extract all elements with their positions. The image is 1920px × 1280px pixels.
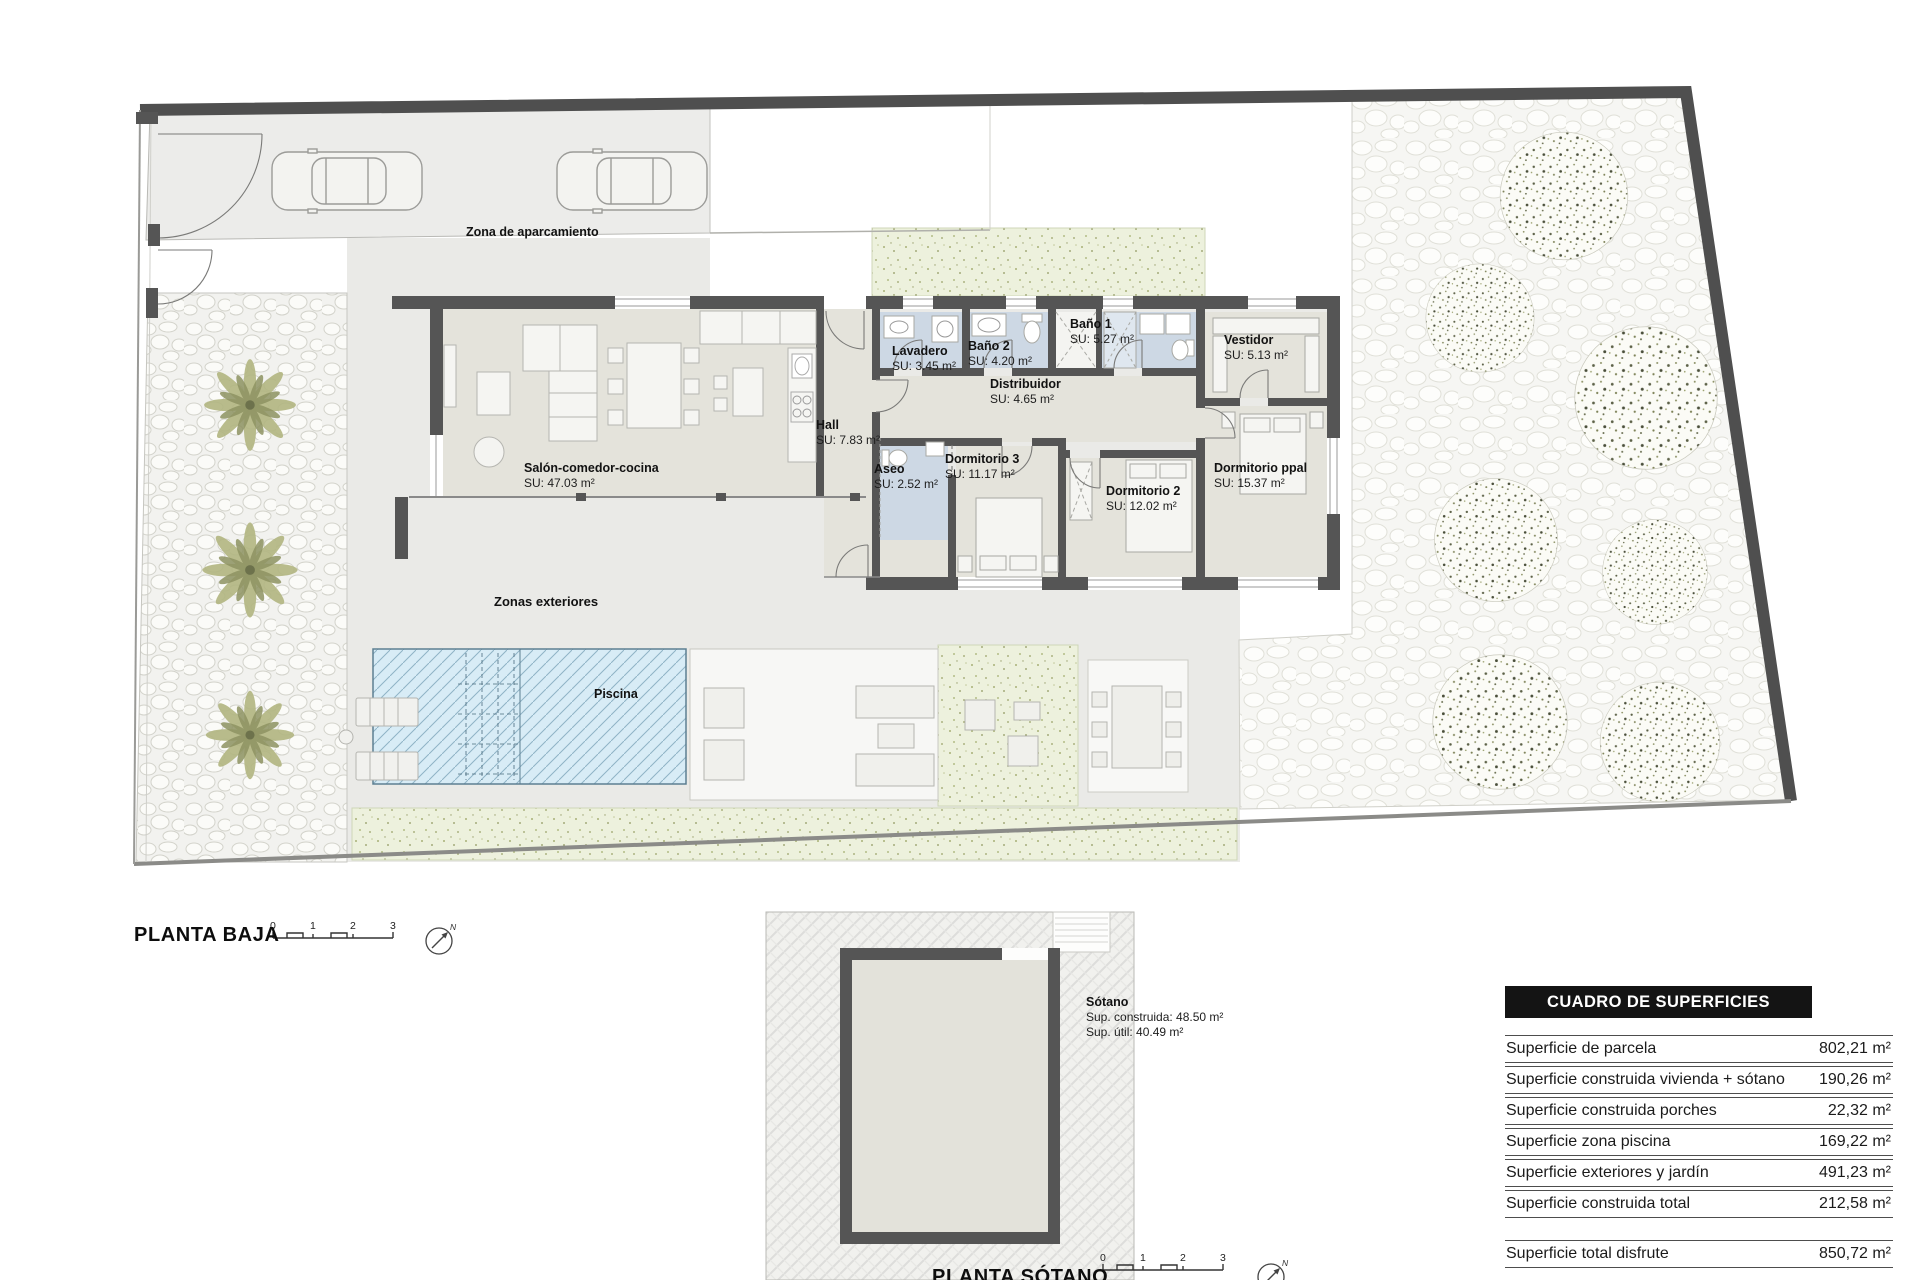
room-area: SU: 12.02 m² bbox=[1106, 499, 1180, 514]
row-value: 491,23 m² bbox=[1819, 1164, 1891, 1182]
row-label: Superficie construida total bbox=[1506, 1195, 1690, 1213]
row-label: Superficie de parcela bbox=[1506, 1040, 1656, 1058]
basement-built-area: Sup. construida: 48.50 m² bbox=[1086, 1010, 1223, 1025]
room-label-salon: Salón-comedor-cocina SU: 47.03 m² bbox=[524, 461, 659, 491]
surfaces-table-rows: Superficie de parcela 802,21 m² Superfic… bbox=[1505, 1035, 1893, 1268]
room-area: SU: 4.20 m² bbox=[968, 354, 1032, 369]
room-area: SU: 5.27 m² bbox=[1070, 332, 1134, 347]
room-name: Vestidor bbox=[1224, 333, 1288, 348]
table-row: Superficie construida porches 22,32 m² bbox=[1505, 1097, 1893, 1125]
room-label-aseo: Aseo SU: 2.52 m² bbox=[874, 462, 938, 492]
row-value: 850,72 m² bbox=[1819, 1245, 1891, 1263]
room-name: Dormitorio 2 bbox=[1106, 484, 1180, 499]
surfaces-table: CUADRO DE SUPERFICIES Superficie de parc… bbox=[1505, 986, 1893, 1271]
room-label-dorm2: Dormitorio 2 SU: 12.02 m² bbox=[1106, 484, 1180, 514]
floor-plan-page: 0 1 2 3 N bbox=[0, 0, 1920, 1280]
room-area: SU: 47.03 m² bbox=[524, 476, 659, 491]
table-row: Superficie de parcela 802,21 m² bbox=[1505, 1035, 1893, 1063]
row-value: 190,26 m² bbox=[1819, 1071, 1891, 1089]
room-area: SU: 5.13 m² bbox=[1224, 348, 1288, 363]
room-area: SU: 2.52 m² bbox=[874, 477, 938, 492]
row-label: Superficie total disfrute bbox=[1506, 1245, 1669, 1263]
room-label-bano2: Baño 2 SU: 4.20 m² bbox=[968, 339, 1032, 369]
exterior-zones-label: Zonas exteriores bbox=[494, 594, 598, 609]
room-label-dorm3: Dormitorio 3 SU: 11.17 m² bbox=[945, 452, 1019, 482]
room-name: Salón-comedor-cocina bbox=[524, 461, 659, 476]
row-value: 169,22 m² bbox=[1819, 1133, 1891, 1151]
room-label-lavadero: Lavadero SU: 3.45 m² bbox=[892, 344, 956, 374]
room-name: Baño 2 bbox=[968, 339, 1032, 354]
table-row: Superficie exteriores y jardín 491,23 m² bbox=[1505, 1159, 1893, 1187]
room-label-distribuidor: Distribuidor SU: 4.65 m² bbox=[990, 377, 1061, 407]
room-area: SU: 4.65 m² bbox=[990, 392, 1061, 407]
room-label-hall: Hall SU: 7.83 m² bbox=[816, 418, 880, 448]
room-name: Baño 1 bbox=[1070, 317, 1134, 332]
basement-label: Sótano Sup. construida: 48.50 m² Sup. út… bbox=[1086, 995, 1223, 1040]
room-name: Sótano bbox=[1086, 995, 1223, 1010]
row-label: Superficie exteriores y jardín bbox=[1506, 1164, 1709, 1182]
floor-title: PLANTA BAJA bbox=[134, 924, 280, 947]
surfaces-table-title: CUADRO DE SUPERFICIES bbox=[1505, 986, 1812, 1018]
table-row: Superficie construida vivienda + sótano … bbox=[1505, 1066, 1893, 1094]
room-name: Dormitorio 3 bbox=[945, 452, 1019, 467]
table-total-row: Superficie total disfrute 850,72 m² bbox=[1505, 1240, 1893, 1268]
pool bbox=[373, 649, 686, 784]
room-label-vestidor: Vestidor SU: 5.13 m² bbox=[1224, 333, 1288, 363]
basement-floor-title: PLANTA SÓTANO bbox=[932, 1266, 1108, 1280]
parking-area-label: Zona de aparcamiento bbox=[466, 225, 599, 239]
table-row: Superficie construida total 212,58 m² bbox=[1505, 1190, 1893, 1218]
room-name: Dormitorio ppal bbox=[1214, 461, 1307, 476]
room-area: SU: 7.83 m² bbox=[816, 433, 880, 448]
basement-useful-area: Sup. útil: 40.49 m² bbox=[1086, 1025, 1223, 1040]
row-label: Superficie construida porches bbox=[1506, 1102, 1717, 1120]
table-row: Superficie zona piscina 169,22 m² bbox=[1505, 1128, 1893, 1156]
row-value: 22,32 m² bbox=[1828, 1102, 1891, 1120]
room-name: Lavadero bbox=[892, 344, 956, 359]
row-label: Superficie construida vivienda + sótano bbox=[1506, 1071, 1785, 1089]
room-label-dormppal: Dormitorio ppal SU: 15.37 m² bbox=[1214, 461, 1307, 491]
room-area: SU: 15.37 m² bbox=[1214, 476, 1307, 491]
room-area: SU: 3.45 m² bbox=[892, 359, 956, 374]
pool-label: Piscina bbox=[594, 687, 638, 701]
room-name: Distribuidor bbox=[990, 377, 1061, 392]
basement-plan bbox=[766, 912, 1134, 1280]
row-value: 802,21 m² bbox=[1819, 1040, 1891, 1058]
row-value: 212,58 m² bbox=[1819, 1195, 1891, 1213]
room-name: Hall bbox=[816, 418, 880, 433]
room-label-bano1: Baño 1 SU: 5.27 m² bbox=[1070, 317, 1134, 347]
room-area: SU: 11.17 m² bbox=[945, 467, 1019, 482]
row-label: Superficie zona piscina bbox=[1506, 1133, 1671, 1151]
room-name: Aseo bbox=[874, 462, 938, 477]
